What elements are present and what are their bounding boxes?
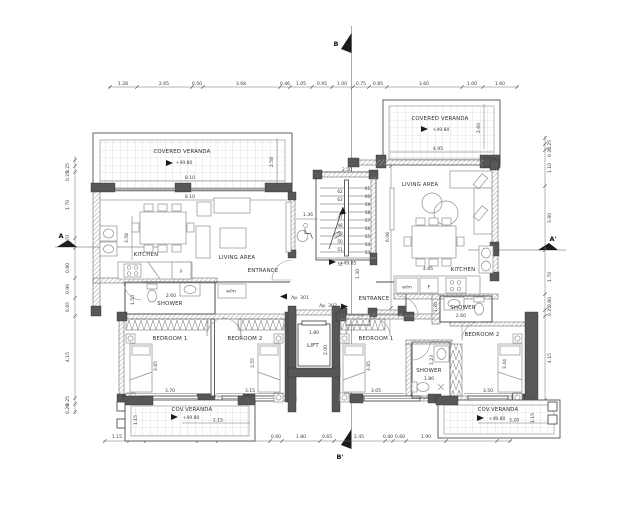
section-label-b2: B' xyxy=(337,453,344,461)
section-marker-a2-icon xyxy=(538,243,558,250)
apt-left-shower: 2.60 SHOWER 1.50 xyxy=(130,283,200,307)
dim-left-8: 4.15 xyxy=(65,352,71,362)
dim-top-1: 1.28 xyxy=(118,81,128,87)
apt-left-cov-veranda: COV.VERANDA +49.80 2.15 1.15 xyxy=(117,396,255,441)
room-label-bedroom1-right: BEDROOM 1 xyxy=(358,336,393,342)
stair-num: 48 xyxy=(337,223,343,228)
dim-bedroom1-left-length: 3.65 xyxy=(153,361,159,371)
dim-top-6: 1.05 xyxy=(296,81,306,87)
dim-cov-veranda-right-width: 3.20 xyxy=(509,418,519,424)
apt-right-shower-top: SHOWER 2.60 1.20 xyxy=(433,297,484,319)
stair-num: 53 xyxy=(365,250,371,255)
dim-bottom-9: 2.45 xyxy=(354,434,364,440)
dim-right-3: 1.10 xyxy=(547,163,553,173)
fridge-label-left: F xyxy=(180,269,183,275)
dim-left-4: 1.70 xyxy=(65,235,71,245)
dim-bottom-6: 0.60 xyxy=(271,434,281,440)
dim-left-10: 0.20 xyxy=(65,404,71,414)
dim-left-3: 1.70 xyxy=(65,200,71,210)
apt-left-veranda: COVERED VERANDA +49.80 8.10 2.58 xyxy=(93,133,292,190)
stair-num: 54 xyxy=(365,242,371,247)
room-label-bedroom2-left: BEDROOM 2 xyxy=(227,336,262,342)
dim-dining-right-width: 4.85 xyxy=(423,266,433,272)
dim-right-4: 3.90 xyxy=(547,213,553,223)
dim-veranda-right-depth: 2.60 xyxy=(476,123,482,133)
dim-left-6: 0.90 xyxy=(65,284,71,294)
dim-bedroom2-right-width: 3.50 xyxy=(483,388,493,394)
level-cov-veranda-left: +49.80 xyxy=(182,415,199,421)
dim-bedroom1-right-length: 3.65 xyxy=(366,361,372,371)
dim-top-3: 0.50 xyxy=(192,81,202,87)
dim-chain-top: 1.28 2.65 0.50 3.68 0.46 1.05 0.95 1.00 … xyxy=(108,81,519,89)
dim-shower-left-width: 2.60 xyxy=(166,293,176,299)
ap301-arrow-icon xyxy=(280,294,287,300)
dim-cov-veranda-left-depth: 1.15 xyxy=(133,415,139,425)
room-label-bedroom1-left: BEDROOM 1 xyxy=(152,336,187,342)
room-label-lift: LIFT xyxy=(307,343,319,349)
dim-top-7: 0.95 xyxy=(317,81,327,87)
room-label-entrance-core: ENTRANCE xyxy=(359,296,390,302)
dim-landing-depth: 1.30 xyxy=(355,269,361,279)
dim-left-7: 0.65 xyxy=(65,302,71,312)
dim-bottom-1: 1.15 xyxy=(112,434,122,440)
stair-num: 61 xyxy=(365,186,371,191)
room-label-bedroom2-right: BEDROOM 2 xyxy=(464,332,499,338)
dim-top-8: 1.00 xyxy=(337,81,347,87)
room-label-cov-veranda-right: COV.VERANDA xyxy=(478,407,519,413)
room-label-shower-mid-right: SHOWER xyxy=(416,368,441,374)
section-marker-b-icon xyxy=(341,33,352,53)
dim-shower-mid-right-depth: 1.23 xyxy=(429,355,435,365)
section-label-a: A xyxy=(58,232,63,240)
wm-label-right: w/m xyxy=(402,285,412,291)
stair-num: 58 xyxy=(365,210,371,215)
dim-top-11: 3.60 xyxy=(419,81,429,87)
dim-shower-mid-right-width: 1.80 xyxy=(424,376,434,382)
room-label-living-right: LIVING AREA xyxy=(402,182,439,188)
dim-lift-width: 1.80 xyxy=(309,330,319,336)
room-label-veranda-left: COVERED VERANDA xyxy=(153,149,210,155)
room-label-veranda-right: COVERED VERANDA xyxy=(411,116,468,122)
dim-bottom-7: 1.80 xyxy=(296,434,306,440)
dim-bedroom1-right-width: 3.05 xyxy=(371,388,381,394)
dim-veranda-right-width: 4.95 xyxy=(433,146,443,152)
core-lift: 1.80 LIFT 2.00 xyxy=(288,306,340,412)
dim-top-2: 2.65 xyxy=(159,81,169,87)
apt-left-bedrooms: BEDROOM 1 3.70 3.65 BEDROOM 2 3.15 3.55 xyxy=(126,319,284,402)
dim-right-6: 0.80 xyxy=(547,297,553,307)
dim-left-2: 0.25 xyxy=(65,171,71,181)
level-veranda-left: +49.80 xyxy=(175,160,192,166)
stair-num: 60 xyxy=(365,194,371,199)
dim-bottom-12: 1.90 xyxy=(421,434,431,440)
room-label-kitchen-left: KITCHEN xyxy=(134,252,159,258)
dim-bedroom2-left-length: 3.55 xyxy=(250,358,256,368)
section-label-a2: A' xyxy=(549,235,556,243)
dim-chain-left: 0.25 0.25 1.70 1.70 0.80 0.90 0.65 4.15 … xyxy=(65,156,77,414)
dim-top-10: 0.85 xyxy=(373,81,383,87)
dim-kitchen-left-depth: 3.58 xyxy=(124,233,130,243)
dim-bedroom1-left-width: 3.70 xyxy=(165,388,175,394)
dim-hall-depth: 6.06 xyxy=(385,232,391,242)
apt-right-bedroom1: BEDROOM 1 3.05 3.65 xyxy=(340,319,404,402)
dim-cov-veranda-left-width: 2.15 xyxy=(213,418,223,424)
dim-top-9: 0.75 xyxy=(356,81,366,87)
dim-shower-top-right-width: 2.60 xyxy=(456,313,466,319)
ap301-label: Ap. 301 xyxy=(291,295,309,301)
dim-right-5: 1.70 xyxy=(547,272,553,282)
level-veranda-right: +49.80 xyxy=(432,127,449,133)
dim-cov-veranda-right-depth: 1.15 xyxy=(530,413,536,423)
room-label-shower-left: SHOWER xyxy=(157,301,182,307)
dim-bottom-11: 0.60 xyxy=(395,434,405,440)
stair-num: 62 xyxy=(337,189,343,194)
stair-num: 63 xyxy=(337,197,343,202)
apt-right-veranda: COVERED VERANDA +49.80 4.95 2.60 xyxy=(376,100,500,168)
floor-plan: B B' A A' 1.28 2.65 0.50 3.68 0.46 1.05 … xyxy=(0,0,624,507)
dim-stair-width: 2.50 xyxy=(342,167,352,173)
apt-right-cov-veranda: COV.VERANDA +49.80 3.20 1.15 xyxy=(436,396,560,438)
stair-num: 50 xyxy=(337,239,343,244)
dim-top-12: 1.00 xyxy=(467,81,477,87)
dim-right-2: 0.25 xyxy=(547,147,553,157)
room-label-living-left: LIVING AREA xyxy=(219,255,256,261)
dim-veranda-left-depth: 2.58 xyxy=(269,157,275,167)
level-cov-veranda-right: +49.80 xyxy=(488,416,505,422)
dim-top-5: 0.46 xyxy=(280,81,290,87)
stair-num: 51 xyxy=(337,247,343,252)
dim-lobby-width: 1.36 xyxy=(303,212,313,218)
dim-veranda-left-width: 8.10 xyxy=(185,175,195,181)
level-landing: +49.85 xyxy=(339,261,356,267)
dim-lift-depth: 2.00 xyxy=(323,345,329,355)
dim-left-5: 0.80 xyxy=(65,263,71,273)
stair-num: 59 xyxy=(365,202,371,207)
wm-label-left: w/m xyxy=(226,289,236,295)
apt-right-shower-mid: SHOWER 1.80 1.23 xyxy=(412,342,462,398)
dim-top-4: 3.68 xyxy=(236,81,246,87)
dim-bottom-10: 0.40 xyxy=(383,434,393,440)
dim-bottom-8: 0.65 xyxy=(322,434,332,440)
fridge-label-right: F xyxy=(428,285,431,291)
core-stairs: 2.50 61 60 59 58 57 56 55 54 53 62 63 47… xyxy=(296,164,393,309)
dim-bedroom2-left-width: 3.15 xyxy=(245,388,255,394)
dim-right-7: 0.25 xyxy=(547,306,553,316)
apt-right-bedroom2: BEDROOM 2 3.50 3.44 xyxy=(464,332,522,402)
wheelchair-icon xyxy=(297,224,313,242)
dim-living-left-width: 8.10 xyxy=(185,194,195,200)
apt-right-living: LIVING AREA 4.85 xyxy=(390,171,492,272)
stair-num: 55 xyxy=(365,234,371,239)
room-label-shower-top-right: SHOWER xyxy=(450,305,475,311)
dim-chain-right: 0.25 0.25 1.10 3.90 1.70 0.80 0.25 4.15 … xyxy=(543,136,553,418)
section-marker-b2-icon xyxy=(341,429,352,449)
dim-top-13: 1.60 xyxy=(495,81,505,87)
dim-bedroom2-right-length: 3.44 xyxy=(502,359,508,369)
room-label-cov-veranda-left: COV.VERANDA xyxy=(172,407,213,413)
dim-shower-top-right-wall: 1.20 xyxy=(433,302,439,312)
room-label-kitchen-right: KITCHEN xyxy=(451,267,476,273)
dim-right-8: 4.15 xyxy=(547,353,553,363)
stair-num: 56 xyxy=(365,226,371,231)
stair-num: 57 xyxy=(365,218,371,223)
section-label-b: B xyxy=(334,40,339,48)
